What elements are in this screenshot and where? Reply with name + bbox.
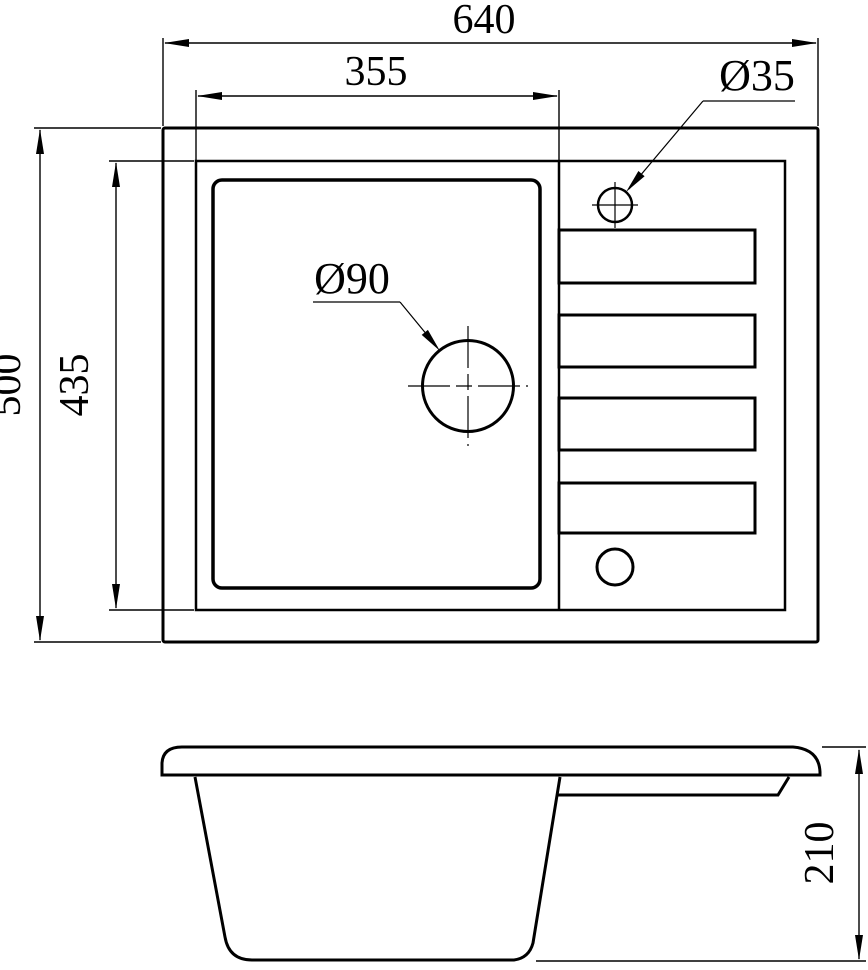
bowl-profile — [195, 777, 560, 960]
leader-drain-hole: Ø90 — [313, 254, 440, 351]
rim-profile — [162, 747, 820, 775]
arrowhead — [855, 749, 863, 774]
arrowhead — [36, 129, 44, 154]
arrowhead — [36, 616, 44, 641]
arrowhead — [164, 39, 189, 47]
arrowhead — [626, 171, 645, 192]
arrowhead — [197, 92, 222, 100]
dimension-text: 640 — [453, 0, 516, 43]
leader-faucet-hole: Ø35 — [626, 51, 795, 192]
sink-outer-edge — [163, 128, 818, 642]
drainboard-rib — [559, 483, 755, 533]
overflow-hole — [597, 549, 633, 585]
drawing-canvas: 640 355 500 435 Ø35 Ø90 — [0, 0, 868, 970]
arrowhead — [112, 162, 120, 187]
drainboard-rib — [559, 315, 755, 367]
arrowhead — [533, 92, 558, 100]
hole-diameter-label: Ø35 — [719, 51, 795, 100]
dimension-text: 210 — [797, 822, 843, 885]
drainboard-profile — [557, 777, 789, 795]
arrowhead — [422, 330, 440, 351]
drainboard-rib — [559, 398, 755, 450]
hole-diameter-label: Ø90 — [314, 254, 390, 303]
top-view — [163, 128, 818, 642]
dimension-text: 435 — [52, 354, 98, 417]
drainboard-rib — [559, 230, 755, 283]
dimension-text: 355 — [345, 49, 408, 95]
side-view — [162, 747, 866, 961]
bowl-outline — [213, 180, 540, 588]
dimension-inner-depth: 435 — [52, 161, 194, 610]
arrowhead — [855, 935, 863, 960]
arrowhead — [112, 584, 120, 609]
dimension-bowl-width: 355 — [196, 49, 559, 160]
dimension-height: 210 — [797, 747, 866, 960]
sink-technical-drawing: 640 355 500 435 Ø35 Ø90 — [0, 0, 868, 970]
dimension-text: 500 — [0, 354, 30, 417]
arrowhead — [792, 39, 817, 47]
